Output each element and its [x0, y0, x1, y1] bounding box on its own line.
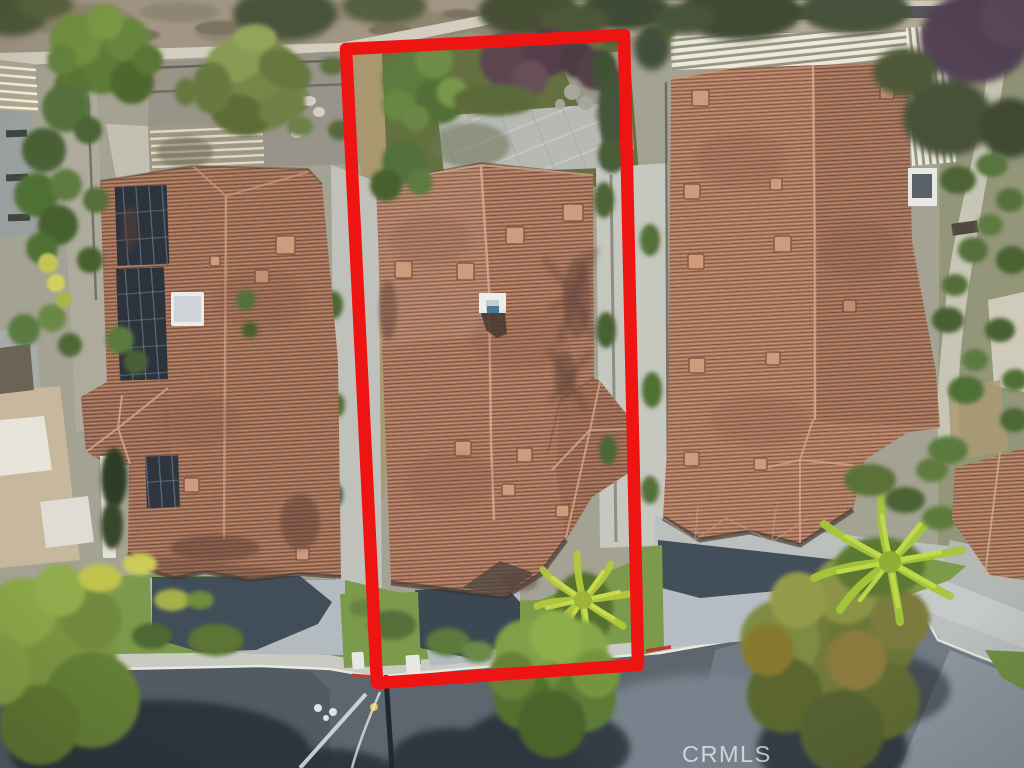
svg-text:CRMLS: CRMLS	[682, 741, 772, 767]
